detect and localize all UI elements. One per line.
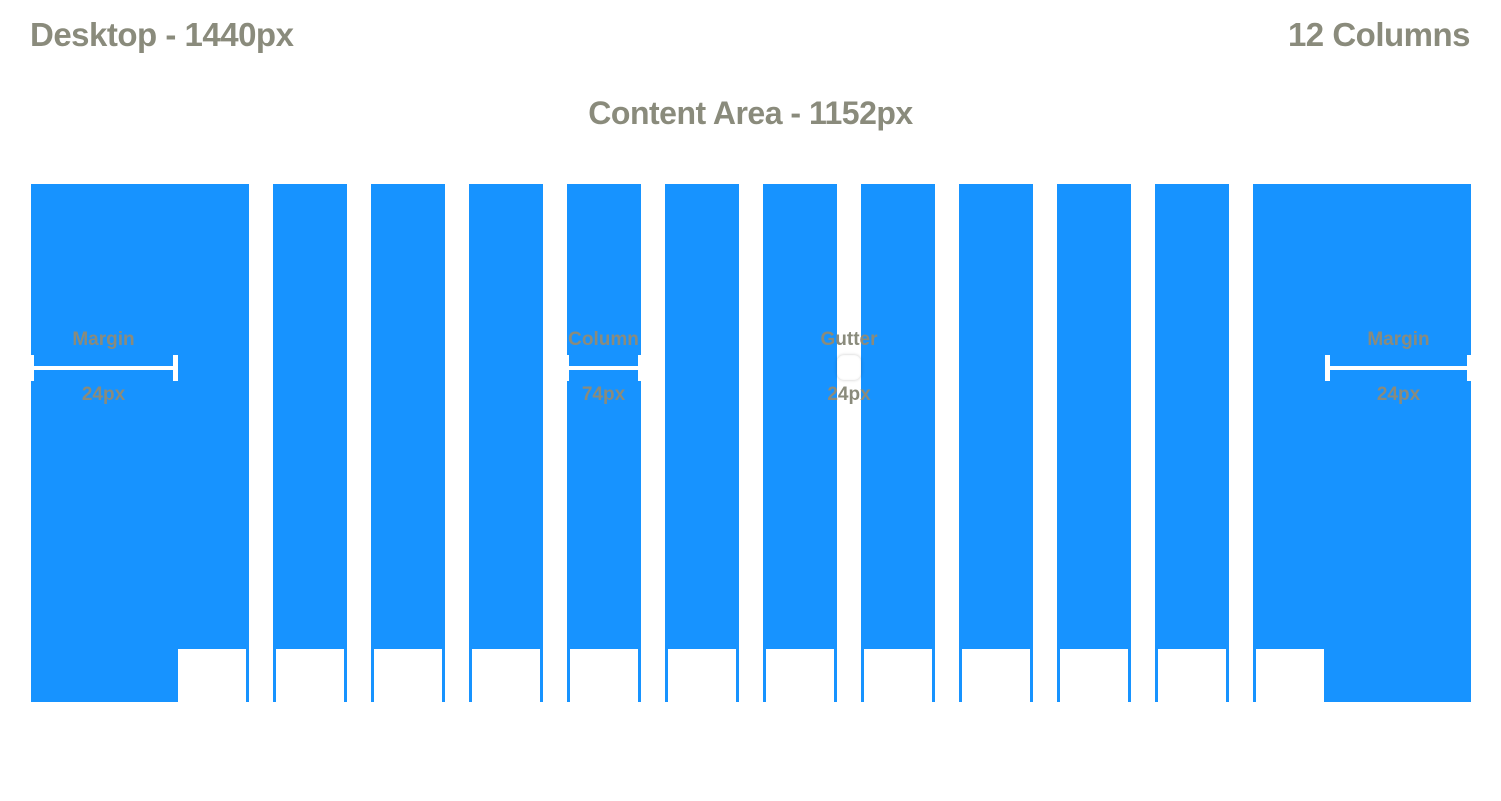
margin-value: 24px (1377, 384, 1420, 406)
grid-column-fill (1057, 184, 1131, 649)
grid-column (1253, 184, 1327, 702)
grid-column-fill (959, 184, 1033, 649)
grid-column-fill (371, 184, 445, 649)
grid: Margin 24px Column 74px Gutter 24px Marg… (31, 184, 1471, 702)
grid-column (567, 184, 641, 702)
grid-column-fill (861, 184, 935, 649)
gutter-label: Gutter (821, 329, 878, 351)
column-label: Column (568, 329, 639, 351)
margin-block-left (31, 184, 175, 702)
dimension-margin-left: Margin 24px (29, 355, 178, 381)
grid-column-fill (567, 184, 641, 649)
grid-column (861, 184, 935, 702)
grid-column (1155, 184, 1229, 702)
grid-column-fill (1253, 184, 1327, 649)
columns-count-label: 12 Columns (1288, 16, 1470, 54)
grid-spec-canvas: Desktop - 1440px 12 Columns Content Area… (0, 0, 1501, 801)
grid-column (959, 184, 1033, 702)
grid-column-fill (273, 184, 347, 649)
grid-column-fill (175, 184, 249, 649)
grid-column-fill (1155, 184, 1229, 649)
grid-column (371, 184, 445, 702)
page-title: Desktop - 1440px (30, 16, 293, 54)
grid-column (175, 184, 249, 702)
dimension-cap-right (1467, 355, 1472, 381)
dimension-line (1325, 366, 1472, 370)
column-value: 74px (582, 384, 625, 406)
grid-column (665, 184, 739, 702)
grid-column (273, 184, 347, 702)
dimension-cap-right (638, 355, 643, 381)
dimension-line (29, 366, 178, 370)
margin-value: 24px (82, 384, 125, 406)
dimension-line (564, 366, 643, 370)
gutter-value: 24px (827, 384, 870, 406)
dimension-cap-left (564, 355, 569, 381)
grid-column (469, 184, 543, 702)
gutter-dimension-pill (837, 355, 861, 380)
margin-block-right (1327, 184, 1471, 702)
dimension-cap-left (29, 355, 34, 381)
content-area-label: Content Area - 1152px (0, 95, 1501, 132)
dimension-margin-right: Margin 24px (1325, 355, 1472, 381)
grid-column-fill (469, 184, 543, 649)
dimension-cap-right (173, 355, 178, 381)
grid-column-fill (665, 184, 739, 649)
margin-label: Margin (72, 329, 134, 351)
dimension-gutter: Gutter 24px (837, 355, 861, 381)
grid-column-fill (763, 184, 837, 649)
dimension-cap-left (1325, 355, 1330, 381)
dimension-column: Column 74px (564, 355, 643, 381)
grid-column (1057, 184, 1131, 702)
grid-column (763, 184, 837, 702)
margin-label: Margin (1367, 329, 1429, 351)
